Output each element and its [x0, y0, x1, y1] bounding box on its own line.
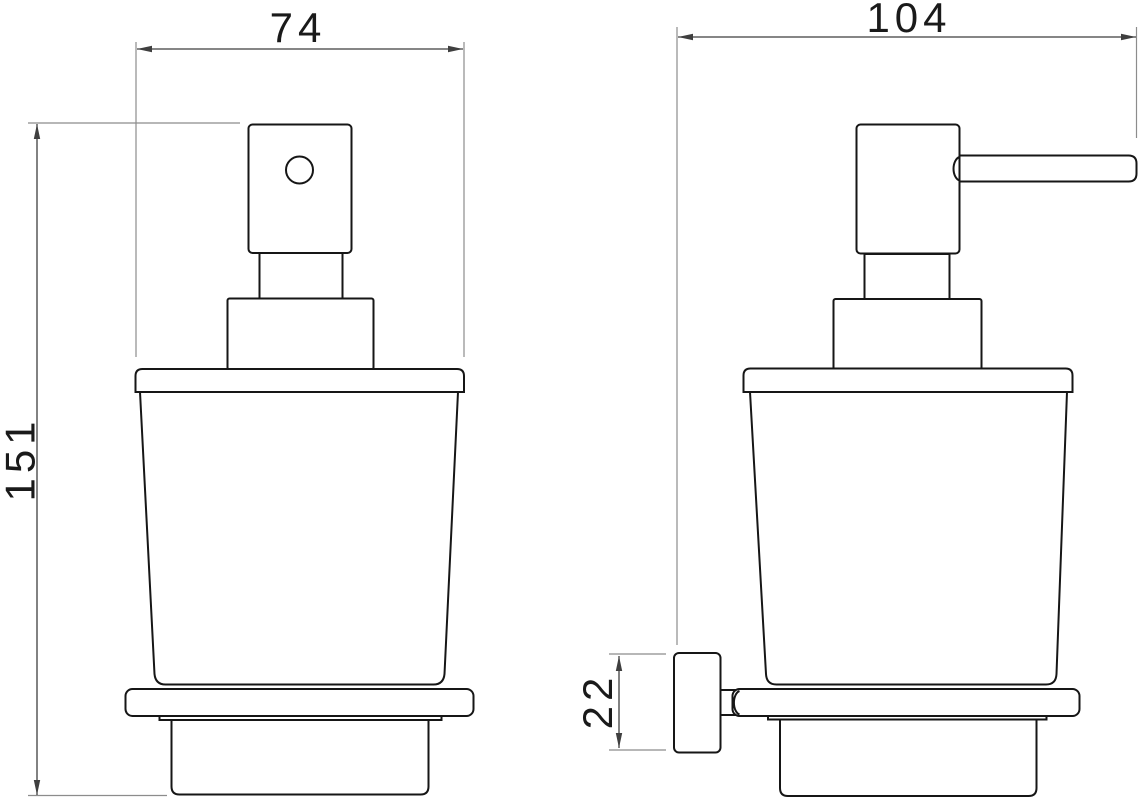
side-pump-stem — [865, 254, 950, 299]
arrowhead-22-bottom-icon — [616, 733, 622, 748]
dim-label-overall-depth: 104 — [866, 0, 951, 41]
side-glass-cup-body — [750, 392, 1067, 685]
front-pump-stem — [260, 253, 343, 299]
drawing-canvas: 74 104 151 22 — [0, 0, 1142, 800]
front-pump-collar — [228, 299, 374, 370]
front-pump-head — [249, 125, 352, 254]
side-spout — [950, 156, 1137, 182]
arrowhead-151-top-icon — [34, 124, 40, 139]
front-cup-rim — [136, 369, 465, 392]
front-glass-cup-body — [140, 392, 458, 685]
side-holder-ring — [733, 689, 1080, 716]
side-view — [674, 125, 1137, 797]
arrowhead-104-right-icon — [1121, 34, 1136, 40]
front-nozzle-hole — [286, 157, 313, 184]
arrowhead-22-top-icon — [616, 656, 622, 671]
arrowhead-104-left-icon — [678, 34, 693, 40]
dim-label-overall-height: 151 — [0, 416, 44, 501]
arrowhead-151-bottom-icon — [34, 780, 40, 795]
side-pump-head — [857, 125, 960, 254]
front-view — [126, 125, 474, 795]
arrowhead-74-left-icon — [137, 46, 152, 52]
side-cup-rim — [744, 369, 1073, 393]
dim-label-front-width: 74 — [270, 4, 327, 51]
side-glass-cup-bottom — [780, 720, 1037, 797]
arrowhead-74-right-icon — [448, 46, 463, 52]
front-holder-ring — [126, 689, 474, 716]
dim-label-wall-plate-depth: 22 — [574, 673, 621, 730]
side-pump-collar — [834, 299, 982, 370]
dispenser-technical-drawing: 74 104 151 22 — [0, 0, 1142, 800]
side-wall-plate — [674, 653, 721, 753]
front-glass-cup-bottom — [172, 720, 429, 795]
